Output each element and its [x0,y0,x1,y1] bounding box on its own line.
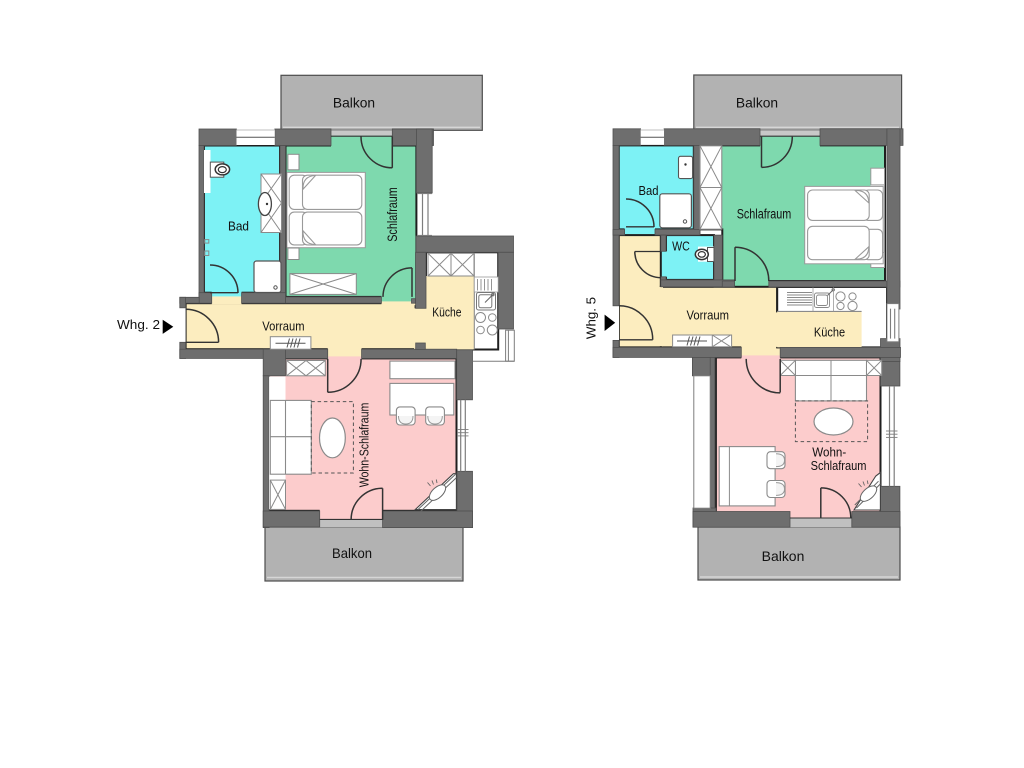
svg-text:Balkon: Balkon [736,94,778,110]
svg-text:Bad: Bad [228,220,249,234]
svg-text:Vorraum: Vorraum [262,319,304,333]
svg-text:Küche: Küche [432,306,461,320]
svg-text:Whg. 5: Whg. 5 [584,297,599,339]
svg-text:Balkon: Balkon [762,548,805,564]
svg-text:Schlafraum: Schlafraum [385,187,400,242]
svg-text:Schlafraum: Schlafraum [737,206,792,221]
svg-text:Bad: Bad [639,184,659,198]
svg-text:WC: WC [672,240,690,254]
svg-text:Balkon: Balkon [332,545,372,561]
svg-text:Küche: Küche [814,326,845,340]
svg-text:Wohn-Schlafraum: Wohn-Schlafraum [358,403,372,488]
svg-text:Whg. 2: Whg. 2 [117,317,160,332]
svg-text:Wohn-: Wohn- [812,446,846,460]
svg-text:Schlafraum: Schlafraum [811,459,867,473]
svg-text:Vorraum: Vorraum [687,309,730,323]
svg-text:Balkon: Balkon [333,94,375,110]
